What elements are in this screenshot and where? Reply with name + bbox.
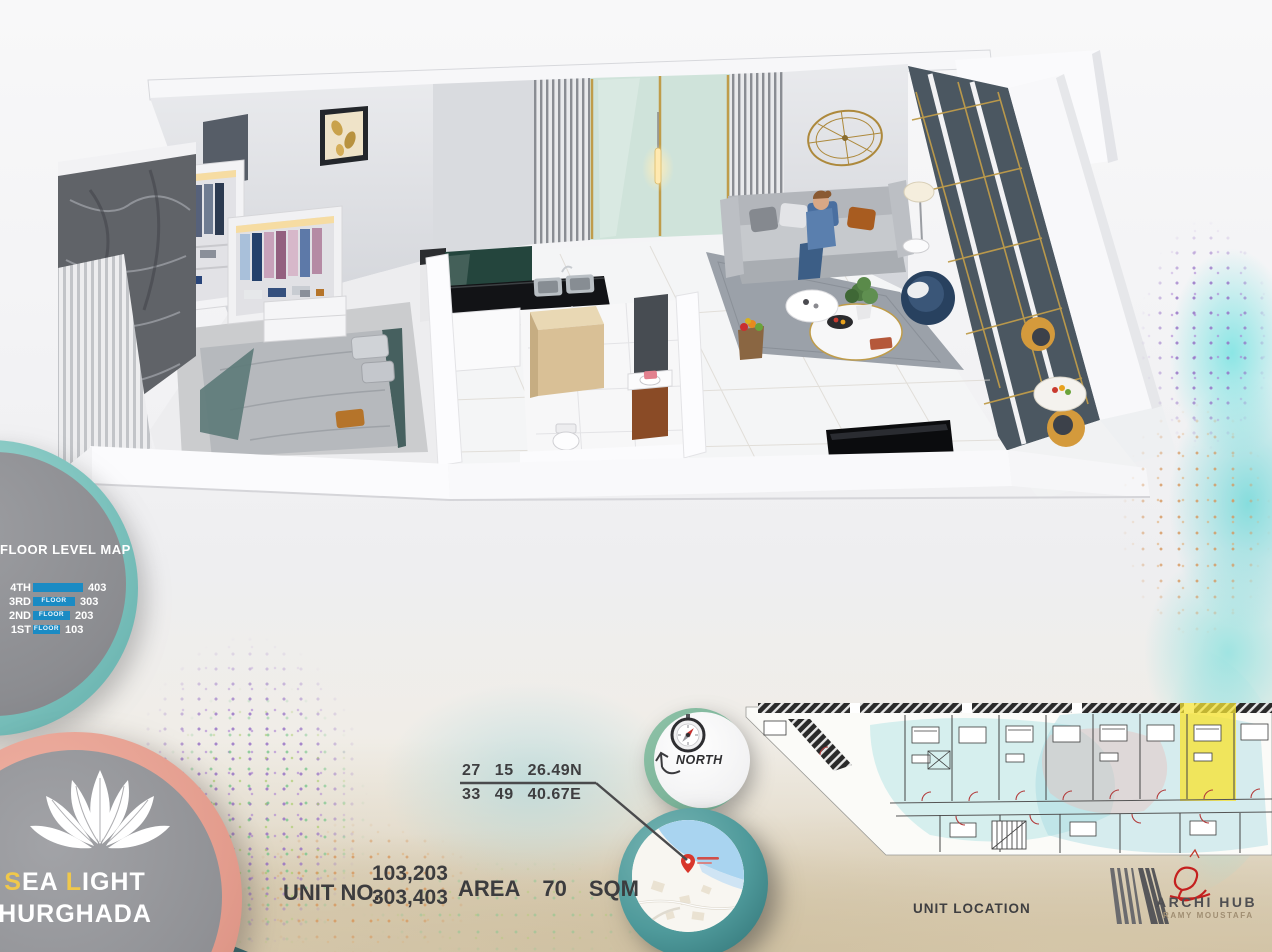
brand-city: HURGHADA [0, 900, 190, 929]
floor-level-map: FLOOR LEVEL MAP 4TH 403 3RD FLOOR 303 2N… [0, 542, 130, 637]
speckles-right-orange [1120, 400, 1272, 640]
balcony-table [1034, 377, 1086, 411]
floor-unit-number: 103 [65, 624, 83, 636]
stripes-logo-icon [1100, 852, 1220, 932]
floor-unit-number: 403 [88, 582, 106, 594]
sofa [720, 180, 914, 284]
floor-row: 2ND FLOOR 203 [0, 609, 130, 622]
floor-bar: FLOOR [33, 597, 75, 606]
area-value: 70 [542, 876, 566, 901]
unit-numbers: 103,203 303,403 [372, 862, 448, 910]
longitude: 334940.67E [462, 786, 581, 804]
highlighted-unit [1180, 703, 1236, 713]
unit-location-label: UNIT LOCATION [913, 901, 1031, 916]
floor-row: 4TH 403 [0, 581, 130, 594]
pillow [847, 206, 877, 231]
pink-towel [644, 371, 658, 380]
floor-level-map-title: FLOOR LEVEL MAP [0, 542, 130, 557]
floor-unit-number: 303 [80, 596, 98, 608]
toilet [553, 424, 579, 450]
studio-designer: RAMY MOUSTAFA [1163, 911, 1254, 920]
shower [530, 306, 604, 398]
bathroom-partition [634, 294, 668, 380]
floor-bar: FLOOR [33, 611, 70, 620]
floor-row: 3RD FLOOR 303 [0, 595, 130, 608]
wall-art [320, 106, 368, 166]
area-label: AREA [458, 876, 520, 901]
bathroom [520, 294, 690, 478]
area-info: AREA70SQM [458, 876, 661, 902]
floor-bar [33, 583, 83, 592]
hanging-clothes [240, 228, 322, 281]
bed [200, 328, 406, 458]
latitude: 271526.49N [462, 762, 582, 780]
fruit-bag [738, 318, 764, 360]
pillow [749, 206, 779, 233]
area-unit: SQM [589, 876, 639, 901]
studio-name: ARCHI HUB [1156, 894, 1257, 910]
floor-bar: FLOOR [33, 625, 60, 634]
floor-row: 1ST FLOOR 103 [0, 623, 130, 636]
floor-unit-number: 203 [75, 610, 93, 622]
brand-name: SEA LIGHT [0, 868, 190, 897]
lotus-icon [28, 768, 173, 868]
poster: FLOOR LEVEL MAP 4TH 403 3RD FLOOR 303 2N… [0, 0, 1272, 952]
vanity [628, 370, 672, 440]
armchair [901, 271, 955, 325]
pillow [779, 203, 808, 229]
unit-no-label: UNIT NO. [283, 880, 380, 906]
staircase [992, 821, 1026, 849]
unit-location-plan [700, 695, 1272, 873]
north-label: NORTH [676, 753, 723, 767]
